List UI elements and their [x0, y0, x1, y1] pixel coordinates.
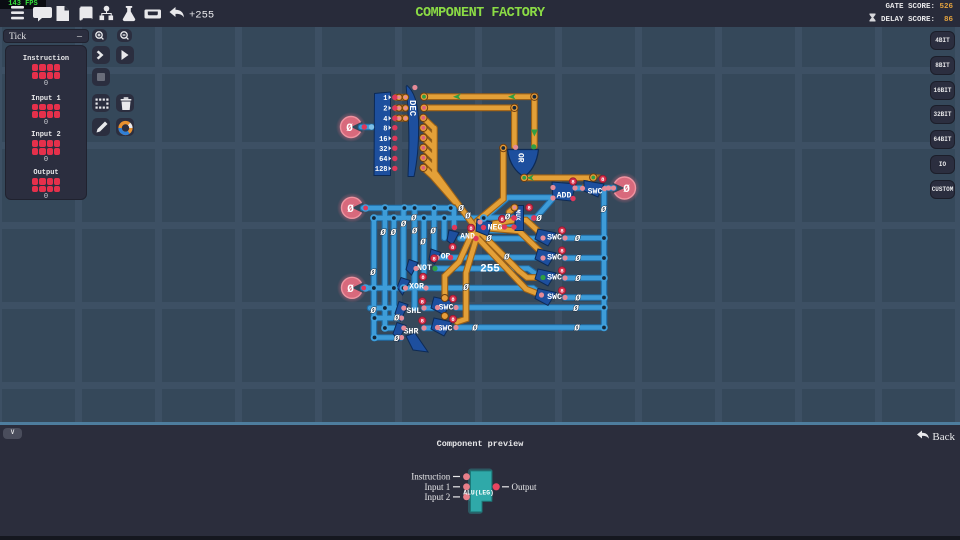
svg-text:Ø: Ø — [393, 313, 400, 323]
svg-text:Ø: Ø — [535, 214, 542, 224]
svg-text:32: 32 — [379, 146, 387, 154]
svg-text:SWC: SWC — [588, 188, 603, 197]
svg-text:8: 8 — [383, 125, 387, 133]
svg-text:Ø: Ø — [573, 324, 580, 334]
svg-text:OR: OR — [516, 153, 525, 163]
svg-text:128: 128 — [375, 166, 388, 174]
svg-text:Ø: Ø — [390, 228, 397, 238]
svg-text:Instruction: Instruction — [411, 472, 450, 482]
svg-text:Output: Output — [512, 482, 538, 492]
svg-text:Ø: Ø — [503, 253, 510, 263]
svg-text:Ø: Ø — [393, 334, 400, 344]
svg-text:Input 1: Input 1 — [425, 482, 451, 492]
svg-text:255: 255 — [480, 264, 500, 276]
svg-text:SWC: SWC — [547, 274, 562, 283]
svg-text:Ø: Ø — [411, 227, 418, 237]
svg-text:Ø: Ø — [623, 184, 630, 196]
svg-text:SWC: SWC — [439, 304, 454, 313]
svg-text:NEG: NEG — [488, 224, 503, 233]
svg-text:SWC: SWC — [547, 254, 562, 263]
svg-text:16: 16 — [379, 136, 387, 144]
svg-text:XOR: XOR — [409, 283, 424, 292]
svg-text:Ø: Ø — [347, 204, 354, 216]
svg-text:1: 1 — [383, 95, 387, 103]
svg-text:SWC: SWC — [547, 293, 562, 302]
svg-text:Ø: Ø — [369, 306, 376, 316]
svg-text:Ø: Ø — [574, 254, 581, 264]
svg-text:AND: AND — [460, 233, 475, 242]
svg-text:64: 64 — [379, 156, 387, 164]
svg-text:Ø: Ø — [457, 204, 464, 214]
svg-text:Ø: Ø — [347, 284, 354, 296]
svg-text:Ø: Ø — [410, 214, 417, 224]
svg-text:Ø: Ø — [429, 227, 436, 237]
svg-text:Ø: Ø — [574, 234, 581, 244]
svg-text:Ø: Ø — [462, 283, 469, 293]
svg-text:Input 2: Input 2 — [425, 492, 451, 502]
svg-text:2: 2 — [383, 106, 387, 114]
svg-text:Ø: Ø — [574, 274, 581, 284]
svg-text:Ø: Ø — [600, 205, 607, 215]
svg-text:Ø: Ø — [400, 220, 407, 230]
svg-text:SWC: SWC — [438, 325, 453, 334]
svg-text:Ø: Ø — [379, 228, 386, 238]
svg-text:SWC: SWC — [547, 234, 562, 243]
svg-text:4: 4 — [383, 116, 387, 124]
svg-text:Ø: Ø — [346, 123, 353, 135]
svg-text:Ø: Ø — [574, 294, 581, 304]
svg-text:+255: +255 — [189, 10, 214, 22]
svg-text:NOT: NOT — [417, 264, 432, 273]
svg-text:Ø: Ø — [504, 213, 511, 223]
svg-text:SHL: SHL — [406, 307, 421, 316]
svg-text:ALU(LEG): ALU(LEG) — [463, 490, 494, 497]
svg-text:Ø: Ø — [471, 324, 478, 334]
svg-text:Ø: Ø — [485, 234, 492, 244]
svg-text:Ø: Ø — [419, 238, 426, 248]
svg-text:Ø: Ø — [572, 304, 579, 314]
svg-text:Ø: Ø — [464, 212, 471, 222]
svg-text:ADD: ADD — [557, 192, 572, 201]
svg-text:Ø: Ø — [369, 268, 376, 278]
